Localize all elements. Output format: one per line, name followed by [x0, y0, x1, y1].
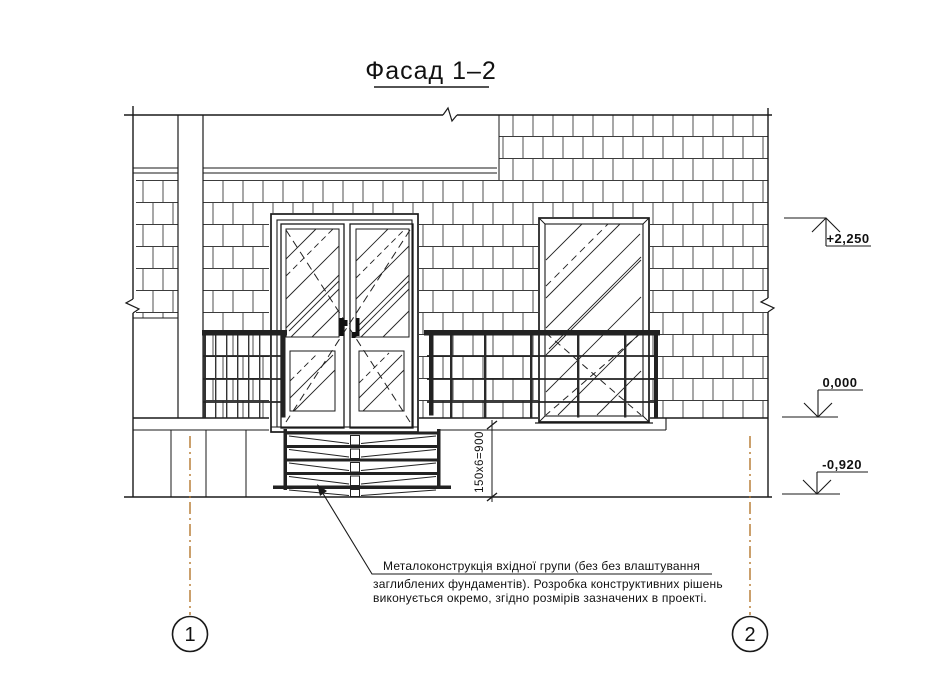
pilaster-edges — [178, 115, 203, 418]
elevation-label-plus2250: +2,250 — [826, 231, 869, 246]
stair-treads — [273, 432, 451, 490]
elevation-marker-minus0920: -0,920 — [782, 457, 868, 494]
drawing-title: Фасад 1–2 — [365, 57, 497, 87]
railing-left-top-rail — [202, 330, 287, 336]
railing-right-top-rail — [424, 330, 660, 336]
axis-1-label: 1 — [184, 624, 195, 646]
plinth-joints — [171, 430, 246, 497]
window — [535, 217, 653, 423]
facade-band — [133, 168, 497, 173]
note-text-line-1: Металоконструкція вхідної групи (без без… — [383, 559, 700, 573]
dimension-stair-height: 150х6=900 — [474, 420, 497, 502]
dimension-label: 150х6=900 — [474, 431, 486, 493]
break-mark-top — [443, 108, 457, 121]
axis-2-label: 2 — [744, 624, 755, 646]
note-text-line-3: виконується окремо, згідно розмірів зазн… — [373, 591, 707, 605]
elevation-label-zero: 0,000 — [822, 375, 857, 390]
note-text-line-2: заглиблених фундаментів). Розробка конст… — [373, 577, 723, 591]
axis-1: 1 — [173, 436, 208, 652]
note-annotation: Металоконструкція вхідної групи (без без… — [317, 484, 723, 605]
wall-left-strip — [136, 180, 178, 318]
elevation-marker-plus2250: +2,250 — [784, 218, 871, 246]
elevation-marker-zero: 0,000 — [782, 375, 863, 417]
page-title: Фасад 1–2 — [365, 57, 497, 85]
elevation-label-minus0920: -0,920 — [822, 457, 862, 472]
entrance-door — [269, 213, 419, 433]
facade-drawing-sheet: Фасад 1–2 — [0, 0, 947, 700]
axis-2: 2 — [733, 436, 768, 652]
entrance-stairs — [273, 429, 451, 497]
